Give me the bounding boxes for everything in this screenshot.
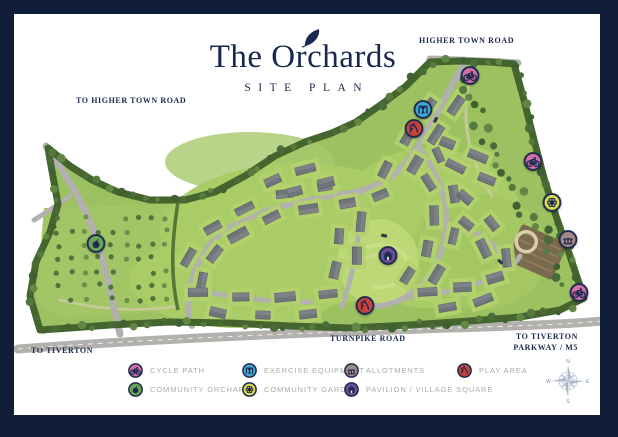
label-higher-town-road: HIGHER TOWN ROAD bbox=[419, 36, 514, 45]
label-parkway-line2: PARKWAY / M5 bbox=[498, 343, 578, 354]
label-turnpike-road: TURNPIKE ROAD bbox=[330, 334, 406, 343]
pavilion-village-square-icon bbox=[344, 382, 359, 397]
compass-w: W bbox=[546, 379, 551, 385]
label-parkway-line1: TO TIVERTON bbox=[498, 332, 578, 343]
community-orchard-icon bbox=[128, 382, 143, 397]
label-to-higher-town-road: TO HIGHER TOWN ROAD bbox=[76, 96, 186, 105]
site-plan-page: The Orchards SITE PLAN HIGHER TOWN ROAD … bbox=[0, 0, 618, 437]
title-block: The Orchards SITE PLAN bbox=[203, 41, 403, 94]
exercise-equipment-icon bbox=[242, 363, 257, 378]
compass-cardinal-points bbox=[552, 365, 584, 397]
compass-s: S bbox=[566, 399, 570, 405]
legend-label: PAVILION / VILLAGE SQUARE bbox=[366, 385, 493, 394]
community-garden-icon bbox=[242, 382, 257, 397]
page-subtitle: SITE PLAN bbox=[203, 82, 403, 94]
legend-label: COMMUNITY ORCHARD bbox=[150, 385, 251, 394]
leaf-icon bbox=[299, 28, 325, 48]
compass-n: N bbox=[566, 359, 570, 365]
label-to-tiverton-parkway: TO TIVERTON PARKWAY / M5 bbox=[498, 332, 578, 354]
legend-label: PLAY AREA bbox=[479, 366, 528, 375]
legend-item-community-garden: COMMUNITY GARDEN bbox=[242, 382, 359, 397]
legend-label: ALLOTMENTS bbox=[366, 366, 425, 375]
legend-item-community-orchard: COMMUNITY ORCHARD bbox=[128, 382, 251, 397]
legend-item-allotments: ALLOTMENTS bbox=[344, 363, 425, 378]
legend-item-pavilion-village-square: PAVILION / VILLAGE SQUARE bbox=[344, 382, 493, 397]
play-area-icon bbox=[457, 363, 472, 378]
legend-label: CYCLE PATH bbox=[150, 366, 205, 375]
cycle-path-icon bbox=[128, 363, 143, 378]
allotments-icon bbox=[344, 363, 359, 378]
legend-item-cycle-path: CYCLE PATH bbox=[128, 363, 205, 378]
legend-item-play-area: PLAY AREA bbox=[457, 363, 528, 378]
compass-rose-icon: N E S W bbox=[543, 356, 593, 406]
label-to-tiverton: TO TIVERTON bbox=[31, 346, 93, 355]
compass-e: E bbox=[586, 379, 590, 385]
